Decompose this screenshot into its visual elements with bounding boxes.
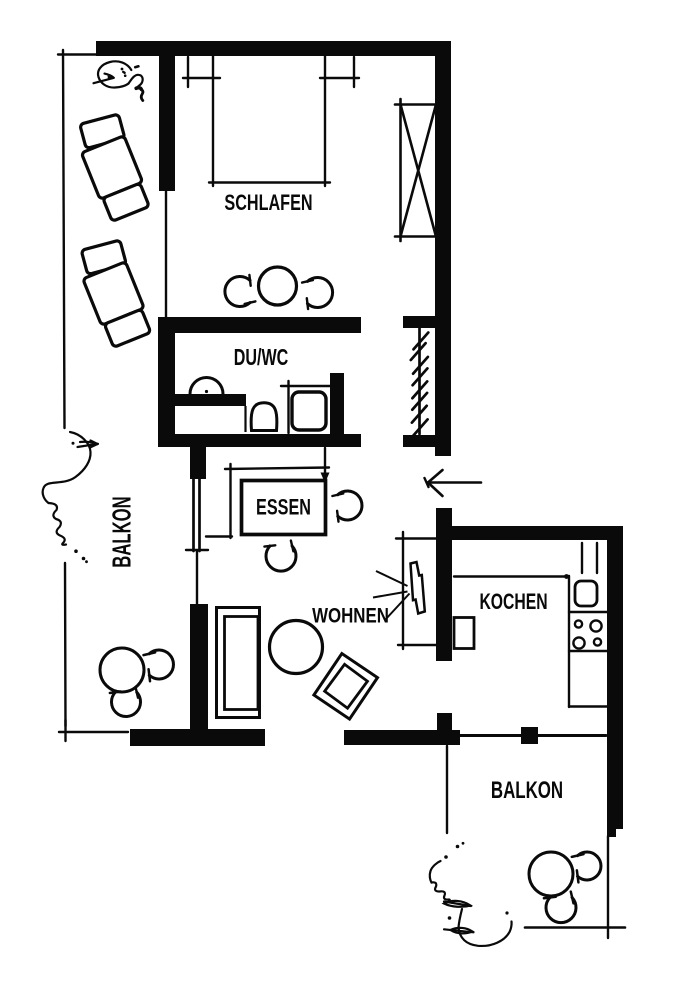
svg-text:DU/WC: DU/WC bbox=[234, 345, 289, 370]
svg-text:ESSEN: ESSEN bbox=[256, 495, 311, 520]
svg-text:SCHLAFEN: SCHLAFEN bbox=[224, 190, 312, 215]
svg-text:BALKON: BALKON bbox=[491, 777, 563, 804]
svg-text:KOCHEN: KOCHEN bbox=[479, 591, 547, 615]
svg-text:BALKON: BALKON bbox=[107, 496, 137, 567]
svg-text:WOHNEN: WOHNEN bbox=[312, 605, 389, 628]
